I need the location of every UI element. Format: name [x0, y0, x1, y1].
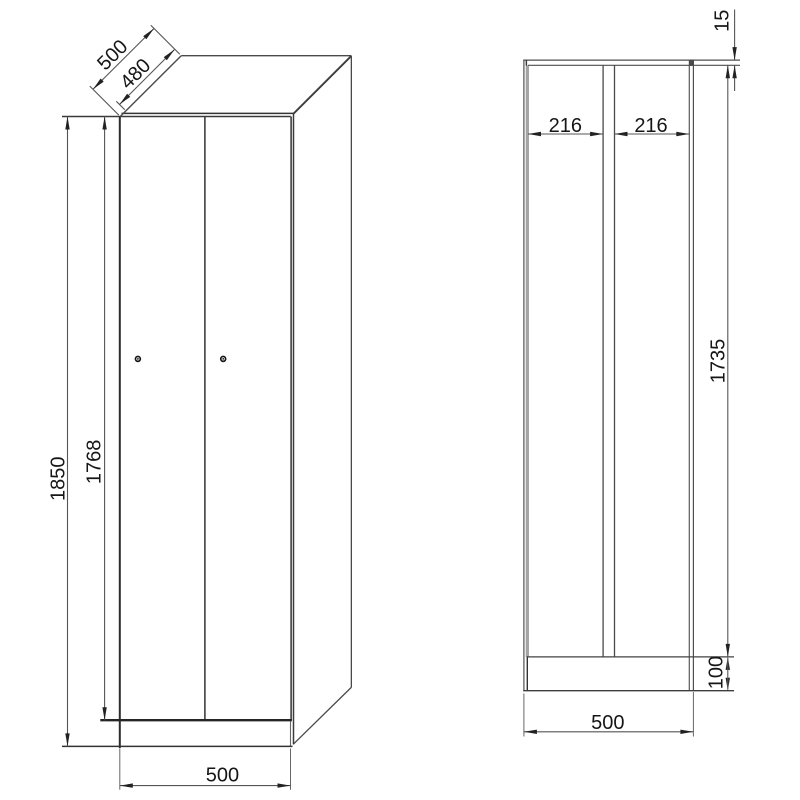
- svg-text:100: 100: [706, 656, 728, 689]
- svg-text:500: 500: [591, 712, 624, 734]
- svg-text:1735: 1735: [707, 339, 729, 384]
- svg-text:500: 500: [206, 764, 239, 786]
- svg-text:15: 15: [712, 10, 734, 32]
- svg-text:1850: 1850: [48, 456, 70, 501]
- svg-text:216: 216: [634, 115, 667, 137]
- svg-text:216: 216: [549, 115, 582, 137]
- svg-text:1768: 1768: [84, 440, 106, 485]
